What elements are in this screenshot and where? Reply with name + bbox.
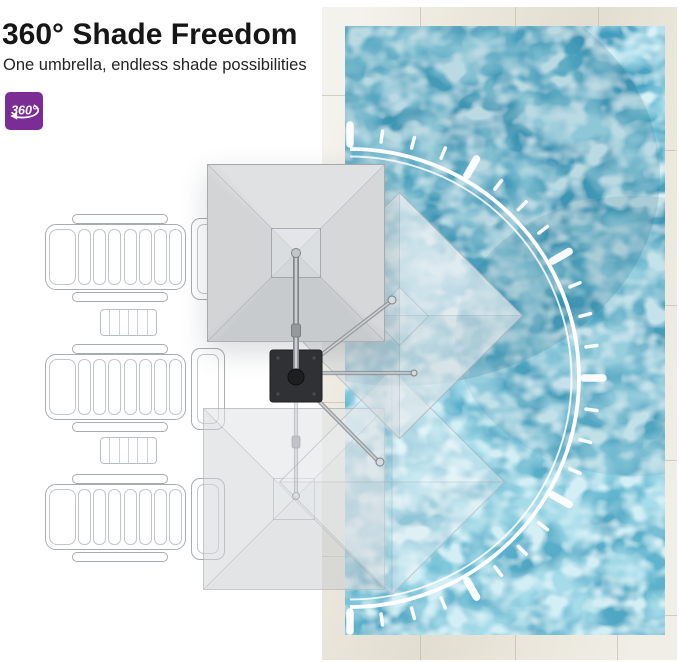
lounge-chair: [45, 344, 227, 436]
chair-slat: [154, 489, 167, 545]
chair-slat: [169, 489, 182, 545]
chair-slat: [108, 229, 121, 285]
chair-slat: [108, 489, 121, 545]
side-table: [100, 437, 157, 464]
chair-slat: [169, 359, 182, 415]
side-table-slat: [110, 438, 119, 463]
chair-side-rail: [72, 292, 168, 302]
lounge-chair: [45, 474, 227, 566]
chair-slat: [139, 489, 152, 545]
chair-slat: [154, 229, 167, 285]
chair-backrest-panel: [49, 489, 76, 545]
chair-side-rail: [72, 474, 168, 484]
side-table-slat: [148, 438, 156, 463]
chair-slat: [139, 359, 152, 415]
chair-slat: [169, 229, 182, 285]
chair-slat: [124, 489, 137, 545]
side-table-slat: [101, 438, 110, 463]
side-table-slat: [129, 438, 138, 463]
chair-slat: [93, 489, 106, 545]
side-table-slat: [148, 310, 156, 335]
chair-slat: [78, 489, 91, 545]
chair-backrest-panel: [49, 359, 76, 415]
page-subtitle: One umbrella, endless shade possibilitie…: [3, 56, 307, 75]
chair-side-rail: [72, 344, 168, 354]
chair-slat: [139, 229, 152, 285]
chair-slat: [93, 229, 106, 285]
chair-slat: [78, 229, 91, 285]
side-table-slat: [110, 310, 119, 335]
lounge-chair: [45, 214, 227, 306]
side-table-slat: [120, 438, 129, 463]
chair-backrest-panel: [49, 229, 76, 285]
chair-slat: [108, 359, 121, 415]
chair-body: [45, 484, 186, 550]
chair-slat: [154, 359, 167, 415]
canopy-vent: [271, 228, 321, 278]
side-table-slat: [120, 310, 129, 335]
side-table-slat: [138, 438, 147, 463]
chair-slat: [124, 229, 137, 285]
page-title: 360° Shade Freedom: [2, 18, 297, 51]
rotation-badge: 360°: [5, 92, 43, 130]
chair-slat: [93, 359, 106, 415]
side-table-slat: [129, 310, 138, 335]
umbrella-canopy-main: [207, 164, 385, 342]
chair-side-rail: [72, 422, 168, 432]
chair-body: [45, 224, 186, 290]
rotation-360-icon: 360°: [5, 92, 43, 130]
chair-side-rail: [72, 214, 168, 224]
chair-slat: [78, 359, 91, 415]
side-table-slat: [101, 310, 110, 335]
chair-slat: [124, 359, 137, 415]
chair-body: [45, 354, 186, 420]
chair-side-rail: [72, 552, 168, 562]
side-table: [100, 309, 157, 336]
side-table-slat: [138, 310, 147, 335]
product-graphic: 360° Shade Freedom One umbrella, endless…: [0, 0, 679, 662]
